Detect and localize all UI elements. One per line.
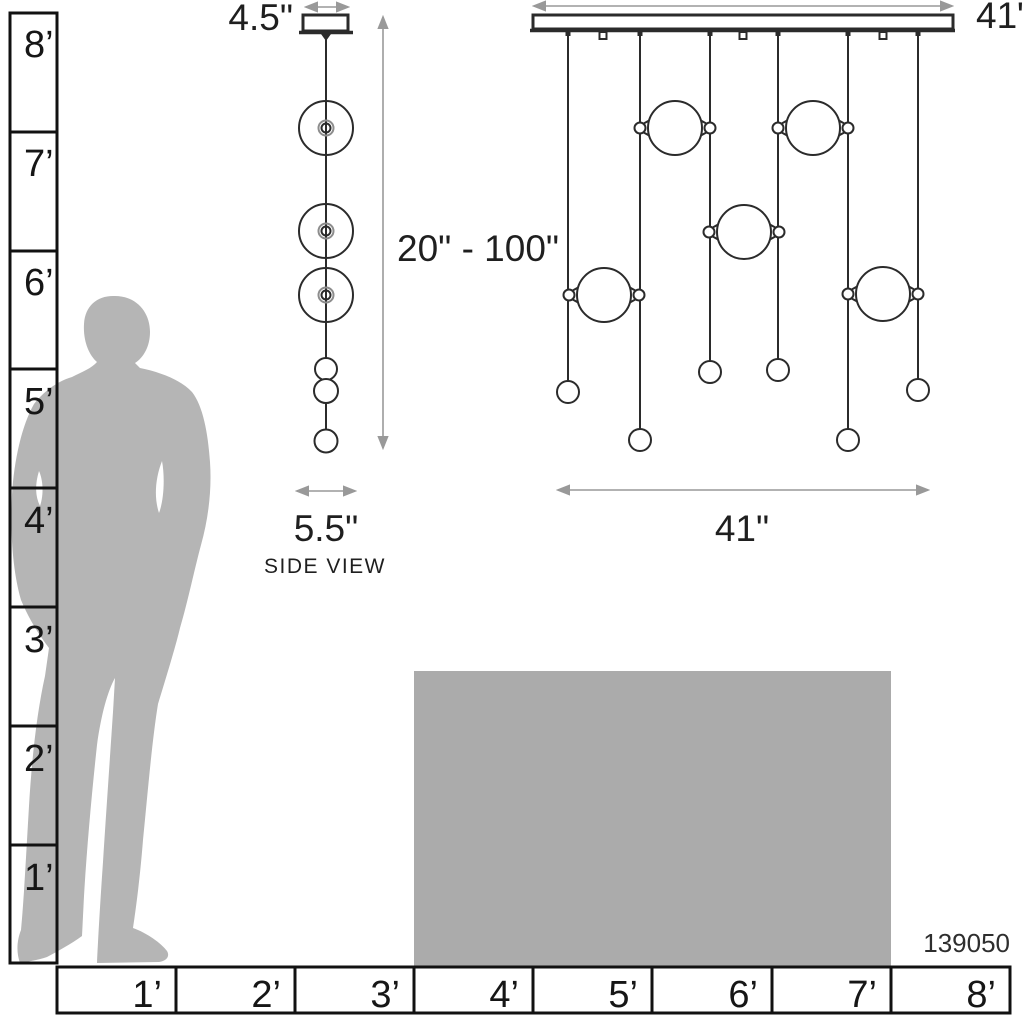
dimension-diagram: 8’ 7’ 6’ 5’ 4’ 3’ 2’ 1’ 1’ 2’ 3’ 4’ 5’ 6… — [0, 0, 1024, 1024]
cable-end-ball — [557, 381, 579, 403]
front-view-fixture — [530, 15, 955, 451]
hruler-label-6ft: 6’ — [728, 974, 758, 1016]
canopy-bar-front — [533, 15, 953, 29]
vruler-label-5ft: 5’ — [24, 381, 54, 423]
pendant-orb — [843, 267, 924, 321]
mount-stub — [880, 32, 887, 39]
side-fixture-width-label: 5.5" — [294, 508, 359, 549]
canopy-side — [303, 15, 348, 31]
vruler-label-4ft: 4’ — [24, 500, 54, 542]
vruler-label-2ft: 2’ — [24, 738, 54, 780]
vruler-label-6ft: 6’ — [24, 262, 54, 304]
cable-end-ball — [907, 379, 929, 401]
pendant-orb — [564, 268, 645, 322]
hruler-label-7ft: 7’ — [847, 974, 877, 1016]
cable-end-ball — [315, 430, 338, 453]
front-canopy-width-label: 41" — [976, 0, 1024, 36]
pendant-orb — [773, 101, 854, 155]
hruler-label-4ft: 4’ — [489, 974, 519, 1016]
side-view-caption: SIDE VIEW — [264, 555, 386, 578]
hruler-label-5ft: 5’ — [608, 974, 638, 1016]
cable-grip — [321, 34, 331, 41]
mount-stub — [600, 32, 607, 39]
horizontal-ruler: 1’ 2’ 3’ 4’ 5’ 6’ 7’ 8’ — [57, 967, 1010, 1016]
product-number: 139050 — [923, 928, 1010, 958]
hruler-label-8ft: 8’ — [966, 974, 996, 1016]
mount-stub — [740, 32, 747, 39]
cable-end-ball — [767, 359, 789, 381]
vruler-label-8ft: 8’ — [24, 24, 54, 66]
cable-end-ball — [629, 429, 651, 451]
hruler-label-1ft: 1’ — [132, 974, 162, 1016]
hruler-label-2ft: 2’ — [251, 974, 281, 1016]
pendant-orb — [704, 205, 785, 259]
pendant-orb — [635, 101, 716, 155]
cable-bead — [314, 379, 338, 403]
cable-bead — [315, 358, 337, 380]
table-block — [414, 671, 891, 967]
front-fixture-width-label: 41" — [715, 508, 769, 549]
vruler-label-3ft: 3’ — [24, 619, 54, 661]
side-view-fixture — [299, 15, 353, 453]
hruler-label-3ft: 3’ — [370, 974, 400, 1016]
height-range-label: 20" - 100" — [397, 228, 559, 269]
diagram-canvas: 8’ 7’ 6’ 5’ 4’ 3’ 2’ 1’ 1’ 2’ 3’ 4’ 5’ 6… — [0, 0, 1024, 1024]
vruler-label-1ft: 1’ — [24, 857, 54, 899]
side-canopy-width-label: 4.5" — [228, 0, 293, 38]
cable-end-ball — [699, 361, 721, 383]
vruler-label-7ft: 7’ — [24, 143, 54, 185]
cable-end-ball — [837, 429, 859, 451]
